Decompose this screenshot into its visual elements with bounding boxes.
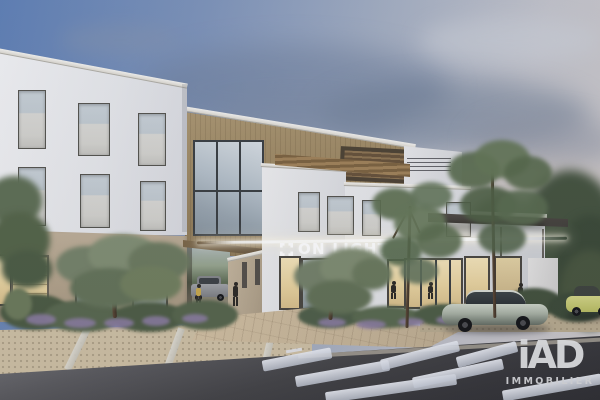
- lavender: [142, 316, 170, 326]
- facade-corner-shade: [182, 84, 187, 232]
- tree-canopy: [400, 258, 438, 284]
- curtain-wall-glazing: [193, 140, 264, 236]
- tree-canopy: [504, 156, 552, 190]
- pedestrian: [233, 282, 238, 306]
- pedestrian: [428, 282, 433, 299]
- window: [80, 174, 110, 228]
- brand-name: iAD: [498, 336, 600, 374]
- annex-slit-window: [255, 259, 260, 285]
- tree-canopy: [410, 182, 452, 210]
- mullion: [195, 190, 262, 192]
- tree-canopy: [416, 224, 462, 258]
- lavender: [398, 318, 424, 326]
- window: [298, 192, 320, 232]
- window: [78, 103, 110, 156]
- lavender: [26, 314, 56, 325]
- lavender: [182, 314, 208, 323]
- grasses: [4, 288, 32, 320]
- cloud: [60, 25, 180, 55]
- mullion: [216, 142, 218, 234]
- hatchback-car: [566, 286, 600, 318]
- brand-tagline: IMMOBILIER: [498, 377, 600, 387]
- olive-tree-canopy: [306, 280, 372, 314]
- window: [327, 196, 354, 235]
- brand-logo: iAD IMMOBILIER: [498, 336, 600, 387]
- pedestrian: [391, 281, 396, 299]
- tree-canopy: [496, 190, 548, 226]
- tree-canopy: [478, 222, 526, 254]
- lavender: [64, 318, 96, 328]
- window: [138, 113, 166, 166]
- on-light-logo-icon: [280, 243, 293, 256]
- cloud: [420, 18, 600, 63]
- annex-slit-window: [242, 262, 247, 288]
- architectural-rendering: ON LIGHT: [0, 0, 600, 400]
- lavender: [104, 318, 134, 328]
- window: [18, 90, 46, 149]
- terrace-railing: [407, 158, 451, 171]
- lavender: [356, 320, 386, 329]
- tree-canopy-left-edge: [2, 250, 52, 288]
- olive-tree-canopy: [120, 266, 182, 302]
- mullion: [239, 142, 241, 234]
- window: [140, 181, 166, 231]
